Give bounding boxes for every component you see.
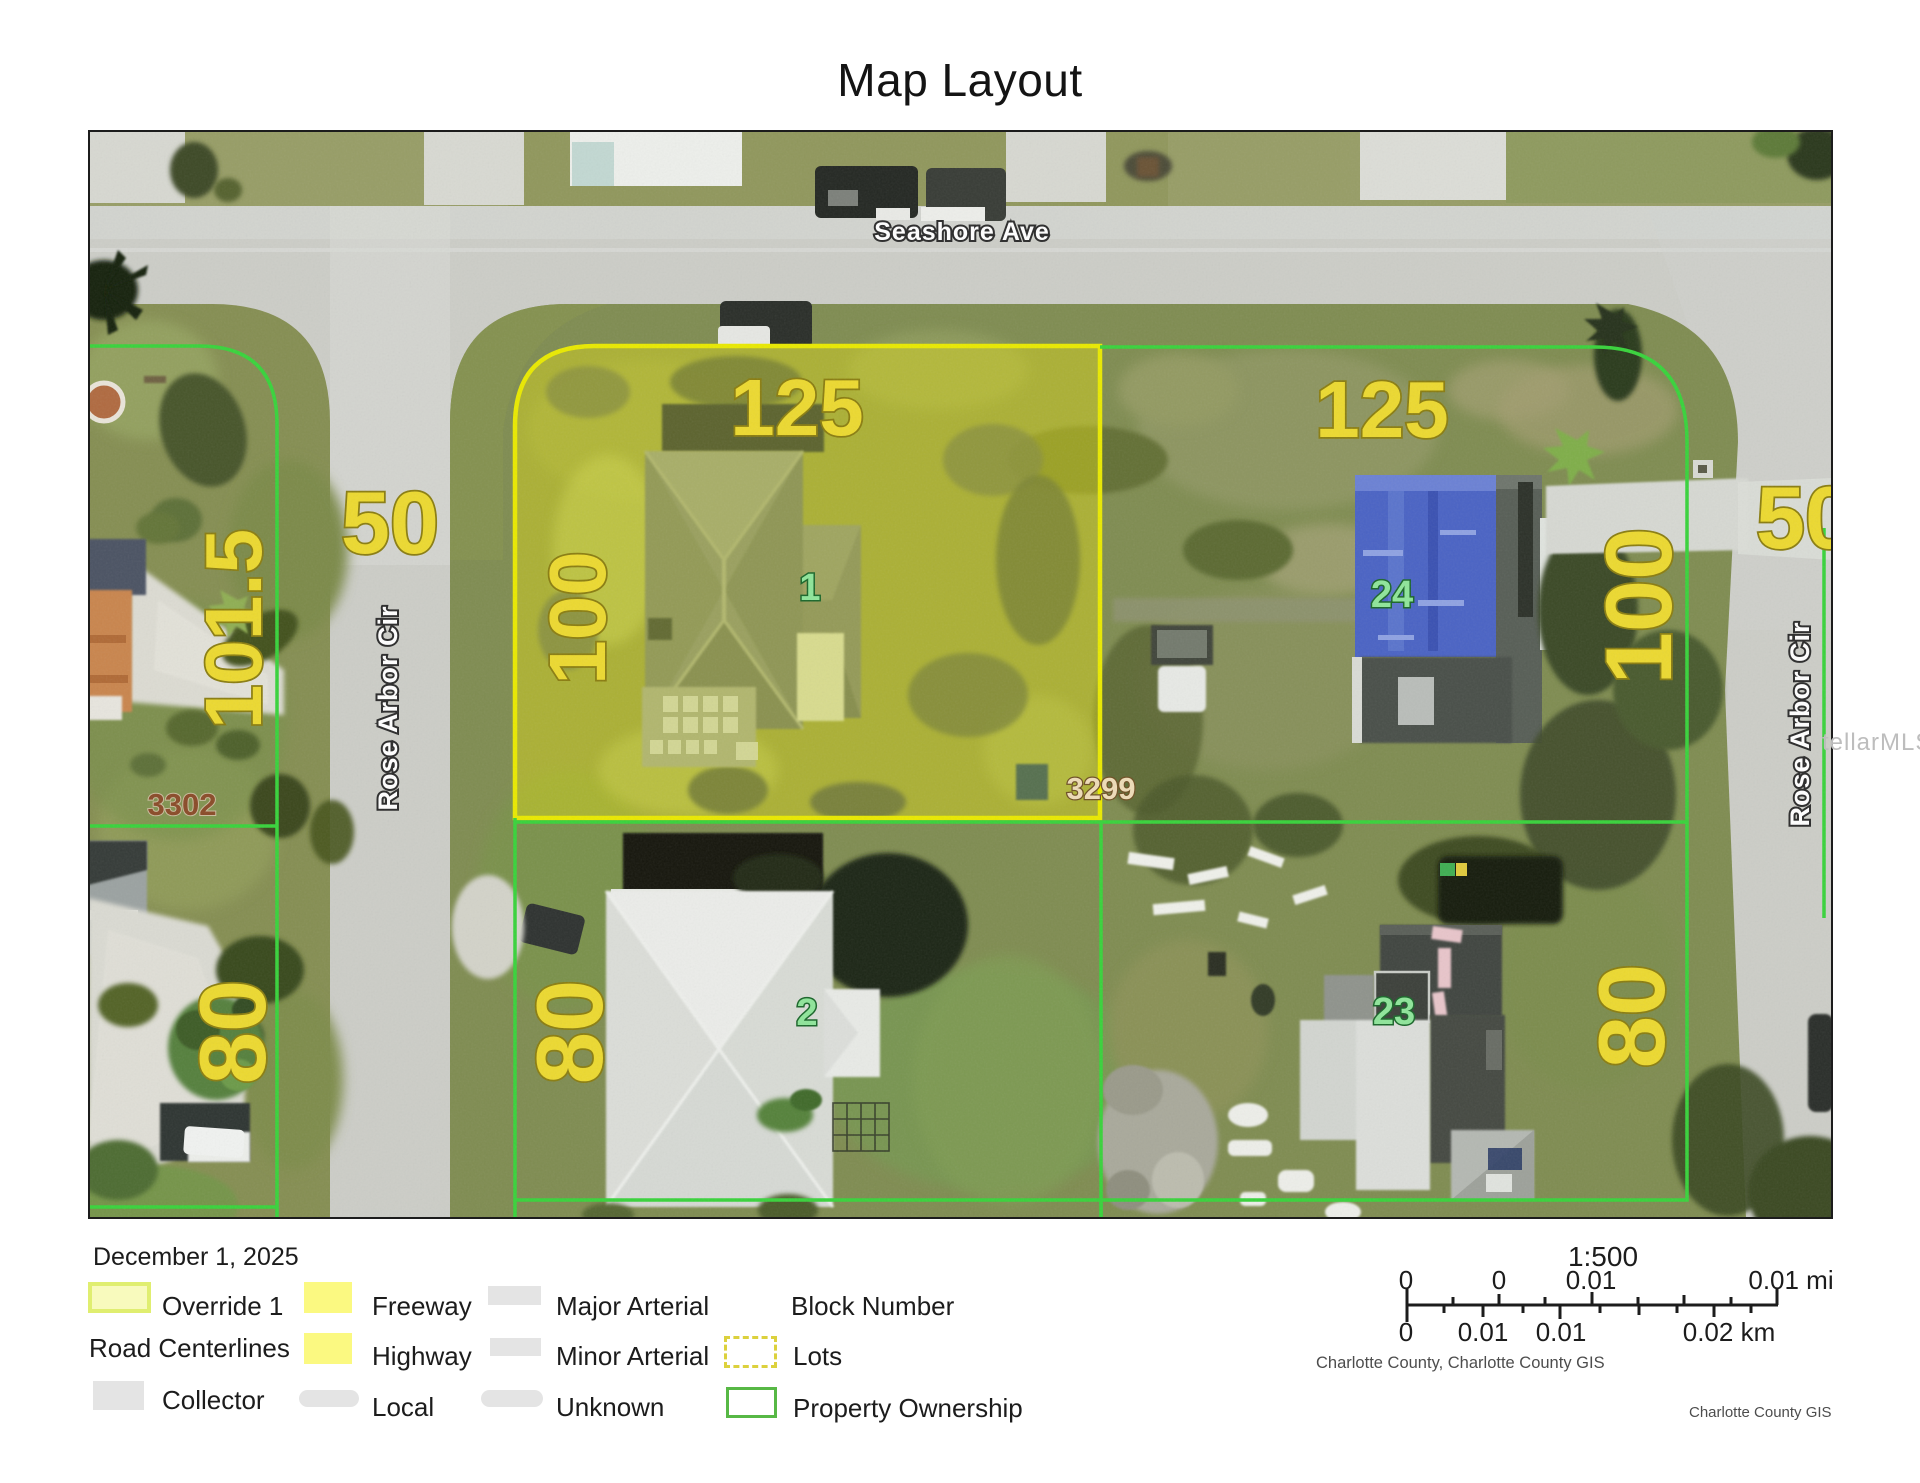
svg-text:0.01: 0.01: [1566, 1265, 1617, 1295]
svg-text:0: 0: [1399, 1317, 1413, 1347]
svg-text:Charlotte County, Charlotte Co: Charlotte County, Charlotte County GIS: [1316, 1354, 1605, 1372]
svg-text:0: 0: [1492, 1265, 1506, 1295]
svg-text:0.01: 0.01: [1536, 1317, 1587, 1347]
svg-text:0.01 mi: 0.01 mi: [1748, 1265, 1833, 1295]
svg-text:0.02 km: 0.02 km: [1683, 1317, 1776, 1347]
svg-text:0.01: 0.01: [1458, 1317, 1509, 1347]
